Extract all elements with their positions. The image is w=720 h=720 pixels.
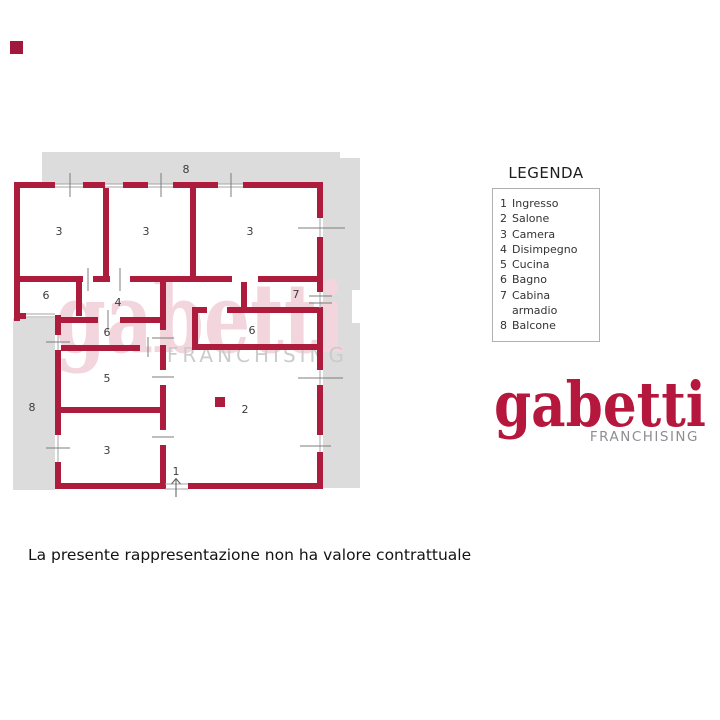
room-label-4: 4: [115, 296, 122, 309]
room-label-7: 7: [293, 288, 300, 301]
room-label-6: 6: [43, 289, 50, 302]
room-label-3: 3: [56, 225, 63, 238]
legend-box: 1Ingresso2Salone3Camera4Disimpegno5Cucin…: [492, 188, 600, 342]
logo-subtext: FRANCHISING: [590, 429, 699, 445]
legend-item: 4Disimpegno: [499, 242, 593, 257]
room-label-8: 8: [29, 401, 36, 414]
room-label-1: 1: [173, 465, 180, 478]
floorplan-drawing: gabetti FRANCHISING: [0, 0, 400, 520]
legend-item: 3Camera: [499, 227, 593, 242]
room-label-8: 8: [183, 163, 190, 176]
room-label-6: 6: [249, 324, 256, 337]
room-label-3: 3: [247, 225, 254, 238]
gabetti-logo: gabetti FRANCHISING: [485, 368, 715, 453]
legend-item: 5Cucina: [499, 257, 593, 272]
legend-item: 2Salone: [499, 211, 593, 226]
disclaimer-text: La presente rappresentazione non ha valo…: [28, 546, 471, 564]
room-label-3: 3: [143, 225, 150, 238]
legend-item: 6Bagno: [499, 272, 593, 287]
legend-item: 8Balcone: [499, 318, 593, 333]
balcony-top: [42, 152, 340, 184]
room-label-6: 6: [104, 326, 111, 339]
room-label-2: 2: [242, 403, 249, 416]
legend: LEGENDA 1Ingresso2Salone3Camera4Disimpeg…: [492, 164, 600, 342]
legend-item: 1Ingresso: [499, 196, 593, 211]
room-label-5: 5: [104, 372, 111, 385]
legend-item: 7Cabina armadio: [499, 288, 593, 319]
entrance-arrow: [172, 479, 181, 498]
legend-title: LEGENDA: [492, 164, 600, 182]
balcony-right-notch: [352, 290, 360, 323]
pillar: [215, 397, 225, 407]
room-label-3: 3: [104, 444, 111, 457]
